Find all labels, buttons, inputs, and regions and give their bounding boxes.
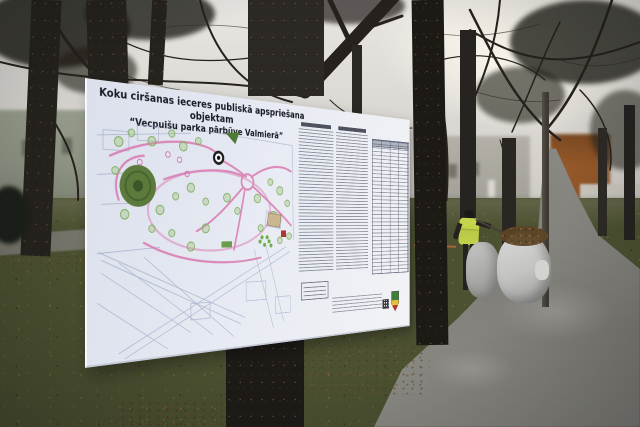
valmiera-coat-of-arms [391,291,399,312]
legend-line [304,286,327,288]
sign-mount-tree-trunk [248,0,324,96]
legend-line [304,290,327,293]
leaves-in-bag [500,226,548,246]
park-scene: Koku ciršanas ieceres publiskā apsprieša… [0,0,640,427]
map-legend [301,281,328,301]
sign-footer-text [332,294,382,315]
qr-code [382,299,388,309]
tree-data-table [372,139,409,274]
small-sack [535,260,549,280]
column-header [338,126,366,133]
tree-list-column-2 [336,132,368,272]
table-header [373,140,409,150]
park-plan-map [92,115,297,363]
legend-line [304,294,327,297]
public-notice-signboard: Koku ciršanas ieceres publiskā apsprieša… [85,78,410,368]
tree-trunk [624,105,635,240]
distant-tree-trunk [460,30,476,225]
column-header [301,122,331,129]
leaf-bag [466,242,500,298]
tree-list-column-1 [299,128,334,274]
tree-trunk-right [412,0,449,345]
tree-trunk [598,128,607,236]
